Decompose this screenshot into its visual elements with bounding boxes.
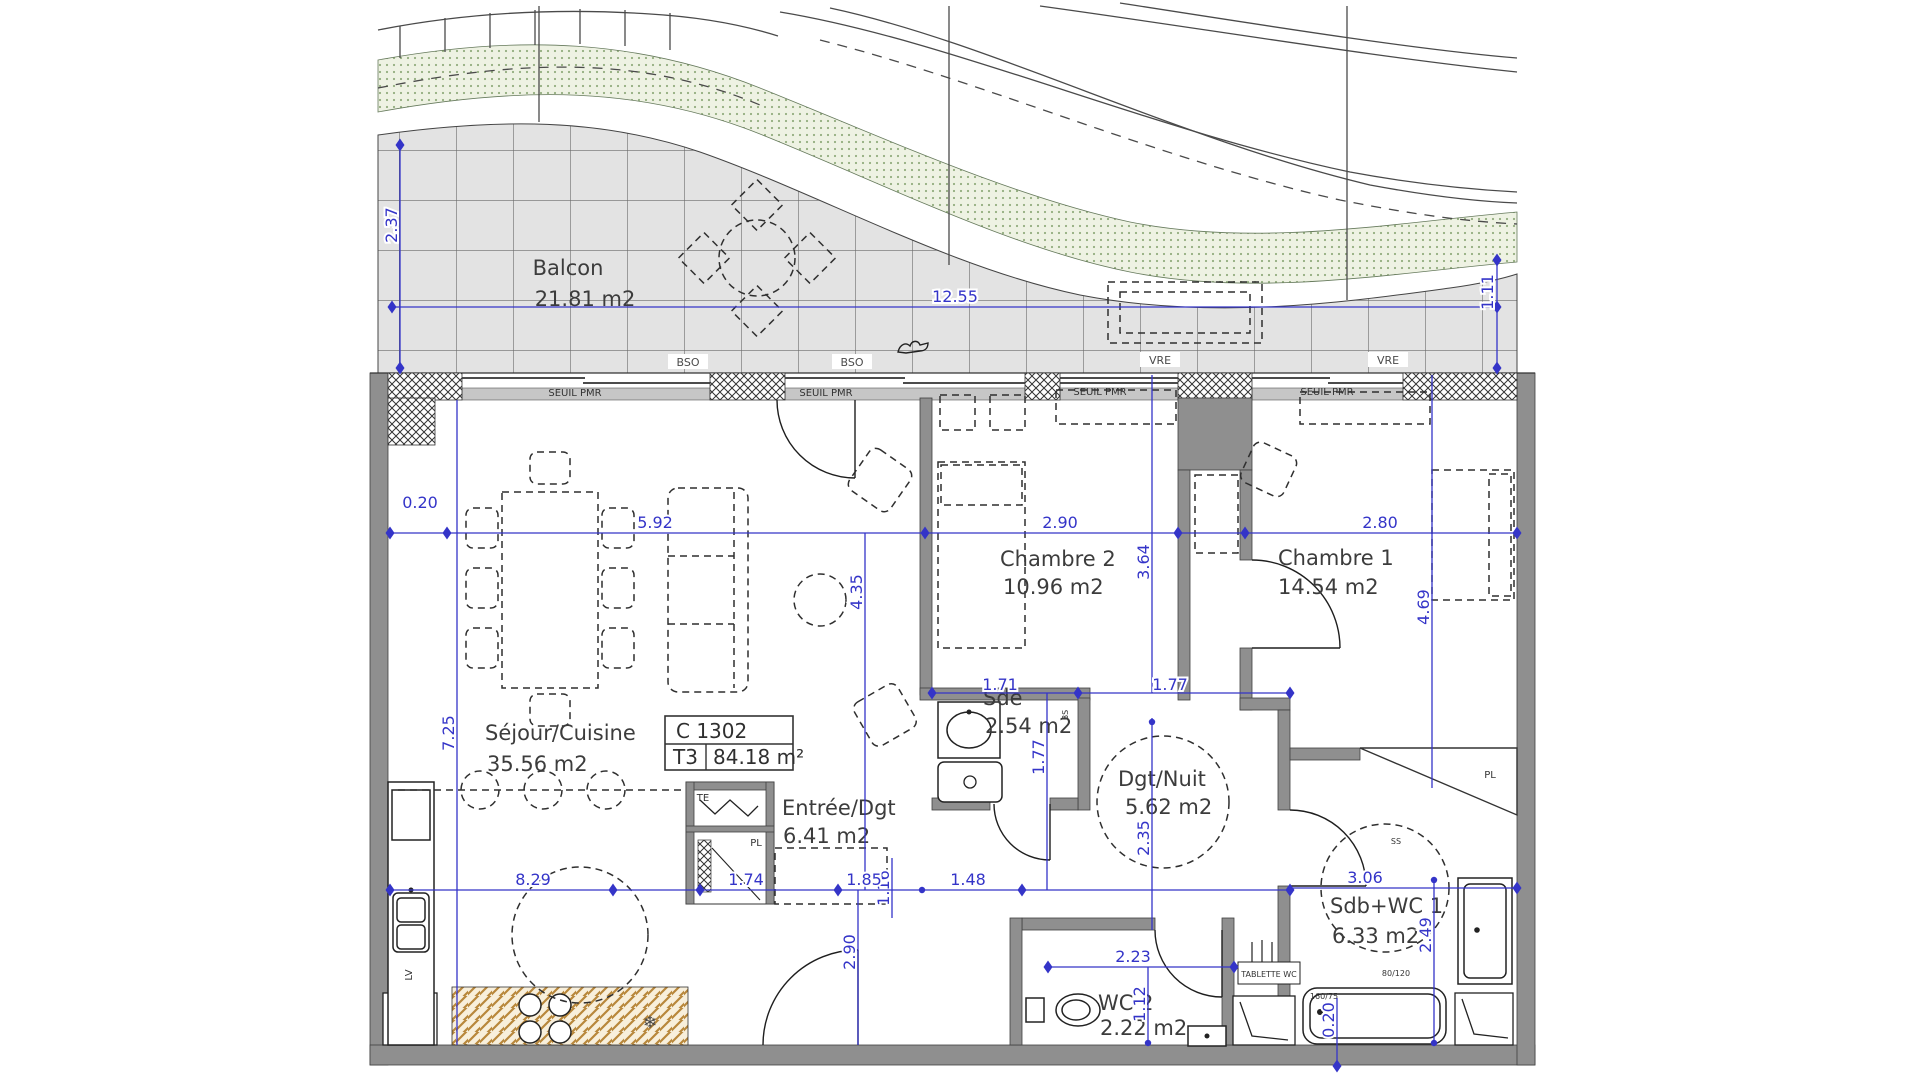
- window-sills: [462, 388, 1403, 400]
- dim-offset-left: 0.20: [402, 493, 438, 512]
- bso-label-2: BSO: [841, 356, 864, 369]
- dim-dgt-h: 2.35: [1134, 820, 1153, 856]
- dim-entree-low-h: 2.90: [840, 934, 859, 970]
- dim-sde-w: 1.71: [982, 675, 1018, 694]
- room-area-sejour: 35.56 m2: [487, 752, 588, 776]
- bso-label-1: BSO: [677, 356, 700, 369]
- room-area-dgt: 5.62 m2: [1125, 795, 1212, 819]
- seuil-pmr-1: SEUIL PMR: [548, 388, 601, 399]
- title-block: C 1302 T3 84.18 m²: [665, 716, 804, 770]
- kitchen-fixtures: LV ❄: [388, 782, 688, 1045]
- room-area-sde: 2.54 m2: [985, 714, 1072, 738]
- room-label-chambre2: Chambre 2: [1000, 547, 1116, 571]
- pl-label-chambre1: PL: [1484, 770, 1496, 781]
- te-label: TE: [696, 793, 709, 804]
- dim-entree-v: 4.35: [847, 574, 866, 610]
- bathtub-size-label: 160/75: [1310, 992, 1338, 1001]
- dim-hall-b: 1.85: [846, 870, 882, 889]
- balcony-zone: Balcon 21.81 m2: [378, 3, 1517, 373]
- dim-hall-a: 1.74: [728, 870, 764, 889]
- dim-wc2-h: 1.12: [1130, 986, 1149, 1022]
- room-label-chambre1: Chambre 1: [1278, 546, 1394, 570]
- tablette-wc-label: TABLETTE WC: [1240, 970, 1297, 979]
- dim-hall-c: 1.48: [950, 870, 986, 889]
- dim-tub-off: 0.20: [1319, 1002, 1338, 1038]
- vre-label-2: VRE: [1377, 354, 1399, 367]
- freezer-icon: ❄: [643, 1013, 657, 1033]
- ss-label: SS: [1391, 837, 1401, 846]
- dim-balcon-d-left: 2.37: [382, 207, 401, 243]
- pl-label-closet: PL: [750, 838, 762, 849]
- dim-ch2-w: 2.90: [1042, 513, 1078, 532]
- dim-balcon-w: 12.55: [932, 287, 978, 306]
- lv-label: LV: [404, 969, 415, 980]
- room-area-chambre1: 14.54 m2: [1278, 575, 1379, 599]
- dim-ch1-h: 4.69: [1414, 589, 1433, 625]
- room-label-balcon: Balcon: [533, 256, 604, 280]
- sloped-closet-wedge: [1360, 748, 1517, 815]
- floor-plan-page: Balcon 21.81 m2 BSO: [0, 0, 1920, 1080]
- seuil-pmr-3: SEUIL PMR: [1073, 387, 1126, 398]
- unit-area: 84.18 m²: [713, 745, 804, 769]
- seuil-pmr-2: SEUIL PMR: [799, 388, 852, 399]
- dim-balcon-d-right: 1.11: [1478, 274, 1497, 310]
- dim-sejour-h: 7.25: [439, 715, 458, 751]
- dim-sdb-w: 3.06: [1347, 868, 1383, 887]
- dim-sde-h: 1.77: [1029, 739, 1048, 775]
- room-area-entree: 6.41 m2: [783, 824, 870, 848]
- room-label-sejour: Séjour/Cuisine: [485, 721, 636, 745]
- room-label-entree: Entrée/Dgt: [782, 796, 896, 820]
- unit-number: C 1302: [676, 719, 747, 743]
- dim-kitchen-w: 8.29: [515, 870, 551, 889]
- floor-plan-drawing: Balcon 21.81 m2 BSO: [0, 0, 1920, 1080]
- room-area-sdb: 6.33 m2: [1332, 924, 1419, 948]
- unit-type: T3: [672, 745, 698, 769]
- dim-sejour-w: 5.92: [637, 513, 673, 532]
- dim-wc2-w: 2.23: [1115, 947, 1151, 966]
- room-label-sdb: Sdb+WC 1: [1330, 894, 1443, 918]
- room-label-dgt: Dgt/Nuit: [1118, 767, 1206, 791]
- shaft-top-left: [388, 398, 435, 445]
- dim-ch1-w: 2.80: [1362, 513, 1398, 532]
- shower-size-label: 80/120: [1382, 969, 1410, 978]
- dim-sdb-h: 2.49: [1416, 917, 1435, 953]
- vre-label-1: VRE: [1149, 354, 1171, 367]
- dim-ch2-h: 3.64: [1134, 544, 1153, 580]
- dim-dgt-w: 1.77: [1152, 675, 1188, 694]
- room-area-chambre2: 10.96 m2: [1003, 575, 1104, 599]
